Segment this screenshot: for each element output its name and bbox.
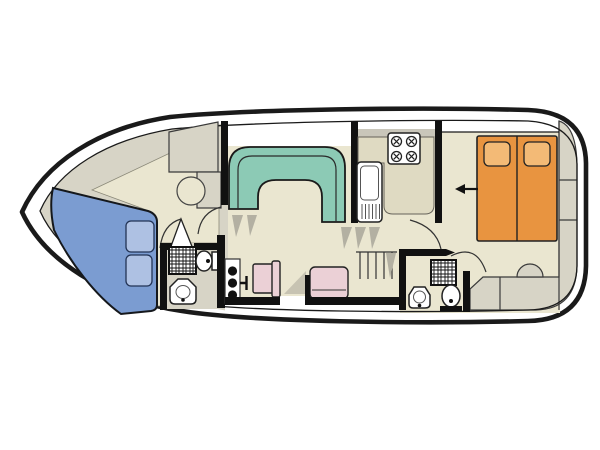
helm-seat-back [272, 261, 280, 297]
boat-floor-plan [0, 0, 600, 450]
helm-gauge-2 [228, 278, 237, 287]
toilet-flush-dot [206, 259, 210, 263]
round-stool [177, 177, 205, 205]
wall-bottom-2 [305, 297, 402, 305]
wall-bathroom-top-right [194, 243, 218, 250]
shower-tray [169, 247, 196, 274]
aft-toilet-base [440, 306, 462, 311]
wall-galley-right [435, 121, 442, 223]
aft-pillow-2 [524, 142, 550, 166]
helm-seat [253, 264, 273, 293]
aft-toilet-bowl [442, 285, 460, 307]
side-seat [310, 267, 348, 299]
helm-gauge-1 [228, 266, 237, 275]
corridor-door-leaf [399, 249, 455, 256]
galley-side-deck [352, 121, 442, 129]
wall-bottom-1 [225, 297, 280, 305]
bow-pillow-1 [126, 221, 154, 252]
side-door-jamb [305, 275, 310, 301]
wall-aft-bathroom-right [463, 271, 470, 312]
galley [357, 121, 442, 223]
wall-aft-bathroom-left [399, 256, 406, 310]
wall-salon-left [221, 121, 228, 205]
aft-washbasin-tap [418, 304, 422, 308]
floor-plan-canvas [0, 0, 600, 450]
wall-salon-left-lower [217, 235, 225, 308]
wall-bathroom-left [160, 243, 167, 310]
aft-pillow-1 [484, 142, 510, 166]
aft-toilet-flush-dot [449, 299, 453, 303]
washbasin-tap [181, 298, 185, 302]
bow-pillow-2 [126, 255, 152, 286]
